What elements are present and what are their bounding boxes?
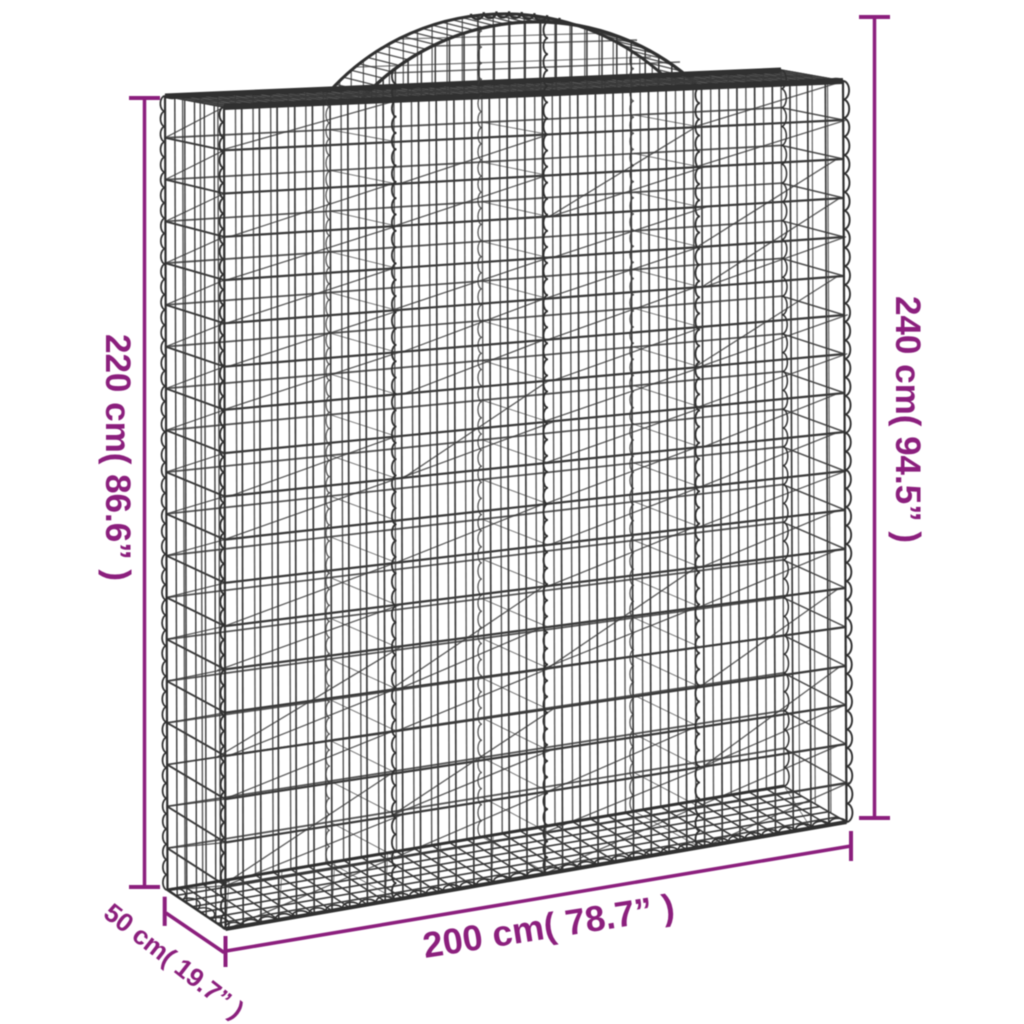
svg-text:220 cm( 86.6” ): 220 cm( 86.6” ) bbox=[98, 334, 137, 581]
svg-text:240 cm( 94.5” ): 240 cm( 94.5” ) bbox=[888, 296, 927, 543]
